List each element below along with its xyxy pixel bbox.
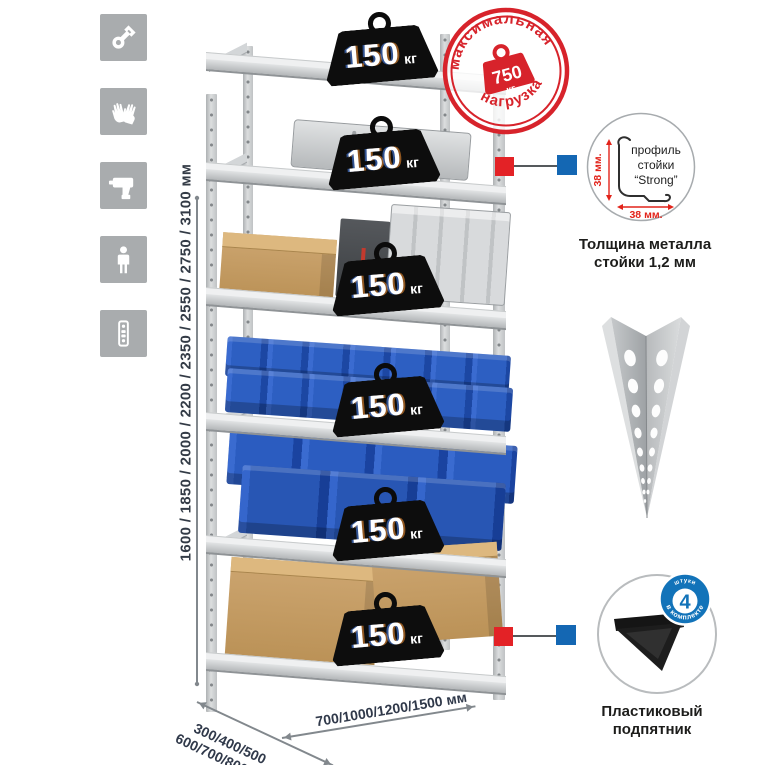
- height-dimension-label: 1600 / 1850 / 2000 / 2200 / 2350 / 2550 …: [178, 103, 195, 623]
- foot-caption-line2: подпятник: [586, 721, 718, 738]
- load-value: 150: [349, 265, 407, 306]
- shelf-load-badge: 150кг: [327, 237, 445, 316]
- load-unit: кг: [409, 525, 423, 542]
- profile-label-1: профиль: [631, 143, 681, 157]
- max-load-stamp: максимальная нагрузка 750 кг: [426, 0, 585, 151]
- feature-tile-person: [100, 236, 147, 283]
- callout-line-top: [513, 165, 559, 167]
- badge-count: 4: [679, 592, 691, 614]
- person-icon: [108, 244, 139, 275]
- shelf-load-badge: 150кг: [323, 111, 441, 190]
- shelf-load-badge: 150кг: [327, 482, 445, 561]
- drill-icon: [108, 170, 139, 201]
- load-unit: кг: [409, 280, 423, 297]
- load-value: 150: [349, 510, 407, 551]
- wrench-icon: [108, 22, 139, 53]
- profile-caption-line1: Толщина металла: [575, 236, 715, 253]
- load-unit: кг: [409, 630, 423, 647]
- angle-post-image: [600, 310, 692, 525]
- load-value: 150: [349, 386, 407, 427]
- load-value: 150: [345, 139, 403, 180]
- load-unit: кг: [405, 154, 419, 171]
- rack-post-front-left: [206, 94, 217, 712]
- feature-tile-gloves: [100, 88, 147, 135]
- load-value: 150: [343, 35, 401, 76]
- shelf-load-badge: 150кг: [321, 7, 439, 86]
- callout-blue-marker-top: [557, 155, 577, 175]
- profile-dim-horizontal: 38 мм.: [629, 209, 662, 221]
- profile-caption-line2: стойки 1,2 мм: [575, 254, 715, 271]
- feature-tile-drill: [100, 162, 147, 209]
- load-unit: кг: [409, 401, 423, 418]
- callout-red-marker-bottom: [494, 627, 513, 646]
- profile-detail-circle: 38 мм. 38 мм. профиль стойки “Strong”: [586, 112, 696, 222]
- callout-blue-marker-bottom: [556, 625, 576, 645]
- product-infographic: 1600 / 1850 / 2000 / 2200 / 2350 / 2550 …: [0, 0, 765, 765]
- shelf-load-badge: 150кг: [327, 358, 445, 437]
- feature-tile-profile: [100, 310, 147, 357]
- profile-label-3: “Strong”: [634, 173, 677, 187]
- shelf-load-badge: 150кг: [327, 587, 445, 666]
- perforated-profile-icon: [108, 318, 139, 349]
- gloves-icon: [108, 96, 139, 127]
- foot-caption-line1: Пластиковый: [586, 703, 718, 720]
- profile-label-2: стойки: [638, 158, 675, 172]
- callout-red-marker-top: [495, 157, 514, 176]
- load-value: 150: [349, 615, 407, 656]
- profile-dim-vertical: 38 мм.: [592, 153, 604, 186]
- callout-line-bottom: [512, 635, 558, 637]
- load-unit: кг: [403, 50, 417, 67]
- height-dimension-line: [196, 198, 198, 684]
- included-count-badge: штуки 4 в комплекте: [658, 572, 712, 626]
- feature-tile-assembly: [100, 14, 147, 61]
